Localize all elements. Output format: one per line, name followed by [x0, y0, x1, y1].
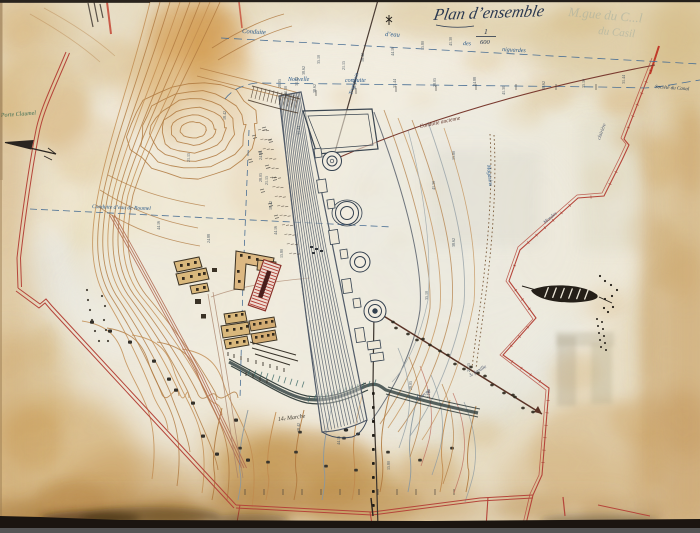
svg-text:Conduite: Conduite	[242, 28, 266, 36]
svg-text:41.30: 41.30	[448, 37, 453, 46]
svg-text:24.88: 24.88	[206, 234, 211, 243]
svg-text:15.80: 15.80	[420, 41, 425, 50]
svg-text:18.42: 18.42	[222, 111, 227, 120]
svg-text:18.42: 18.42	[268, 201, 273, 210]
svg-text:des: des	[463, 41, 472, 47]
svg-text:31.44: 31.44	[621, 75, 626, 84]
svg-text:28.05: 28.05	[258, 173, 263, 182]
svg-text:44.16: 44.16	[390, 47, 395, 56]
svg-text:28.05: 28.05	[277, 79, 282, 88]
svg-text:28.05: 28.05	[408, 381, 413, 390]
svg-text:niguardes: niguardes	[502, 47, 527, 54]
svg-text:35.10: 35.10	[424, 291, 429, 300]
svg-text:44.16: 44.16	[156, 221, 161, 230]
svg-text:15.80: 15.80	[451, 151, 456, 160]
svg-text:Plan d’ensemble: Plan d’ensemble	[431, 1, 546, 24]
svg-text:d’eau: d’eau	[385, 31, 401, 39]
svg-text:38.62: 38.62	[451, 238, 456, 247]
svg-text:600: 600	[480, 39, 491, 46]
svg-text:24.88: 24.88	[258, 151, 263, 160]
svg-text:41.30: 41.30	[283, 86, 288, 95]
svg-text:44.16: 44.16	[336, 436, 341, 445]
svg-text:18.42: 18.42	[296, 423, 301, 432]
svg-text:41.30: 41.30	[501, 86, 506, 95]
svg-text:1: 1	[484, 27, 488, 36]
svg-text:31.44: 31.44	[294, 77, 299, 86]
svg-text:15.80: 15.80	[386, 461, 391, 470]
svg-text:41.30: 41.30	[431, 181, 436, 190]
svg-text:38.62: 38.62	[301, 66, 306, 75]
svg-text:35.10: 35.10	[581, 79, 586, 88]
svg-text:35.10: 35.10	[316, 55, 321, 64]
svg-text:44.16: 44.16	[273, 226, 278, 235]
svg-text:15.80: 15.80	[279, 249, 284, 258]
svg-text:31.44: 31.44	[296, 126, 301, 135]
svg-text:21.15: 21.15	[341, 61, 346, 70]
svg-text:21.15: 21.15	[466, 363, 471, 372]
svg-text:38.62: 38.62	[541, 81, 546, 90]
svg-text:18.42: 18.42	[360, 53, 365, 62]
svg-text:21.15: 21.15	[186, 153, 191, 162]
svg-text:21.15: 21.15	[264, 176, 269, 185]
